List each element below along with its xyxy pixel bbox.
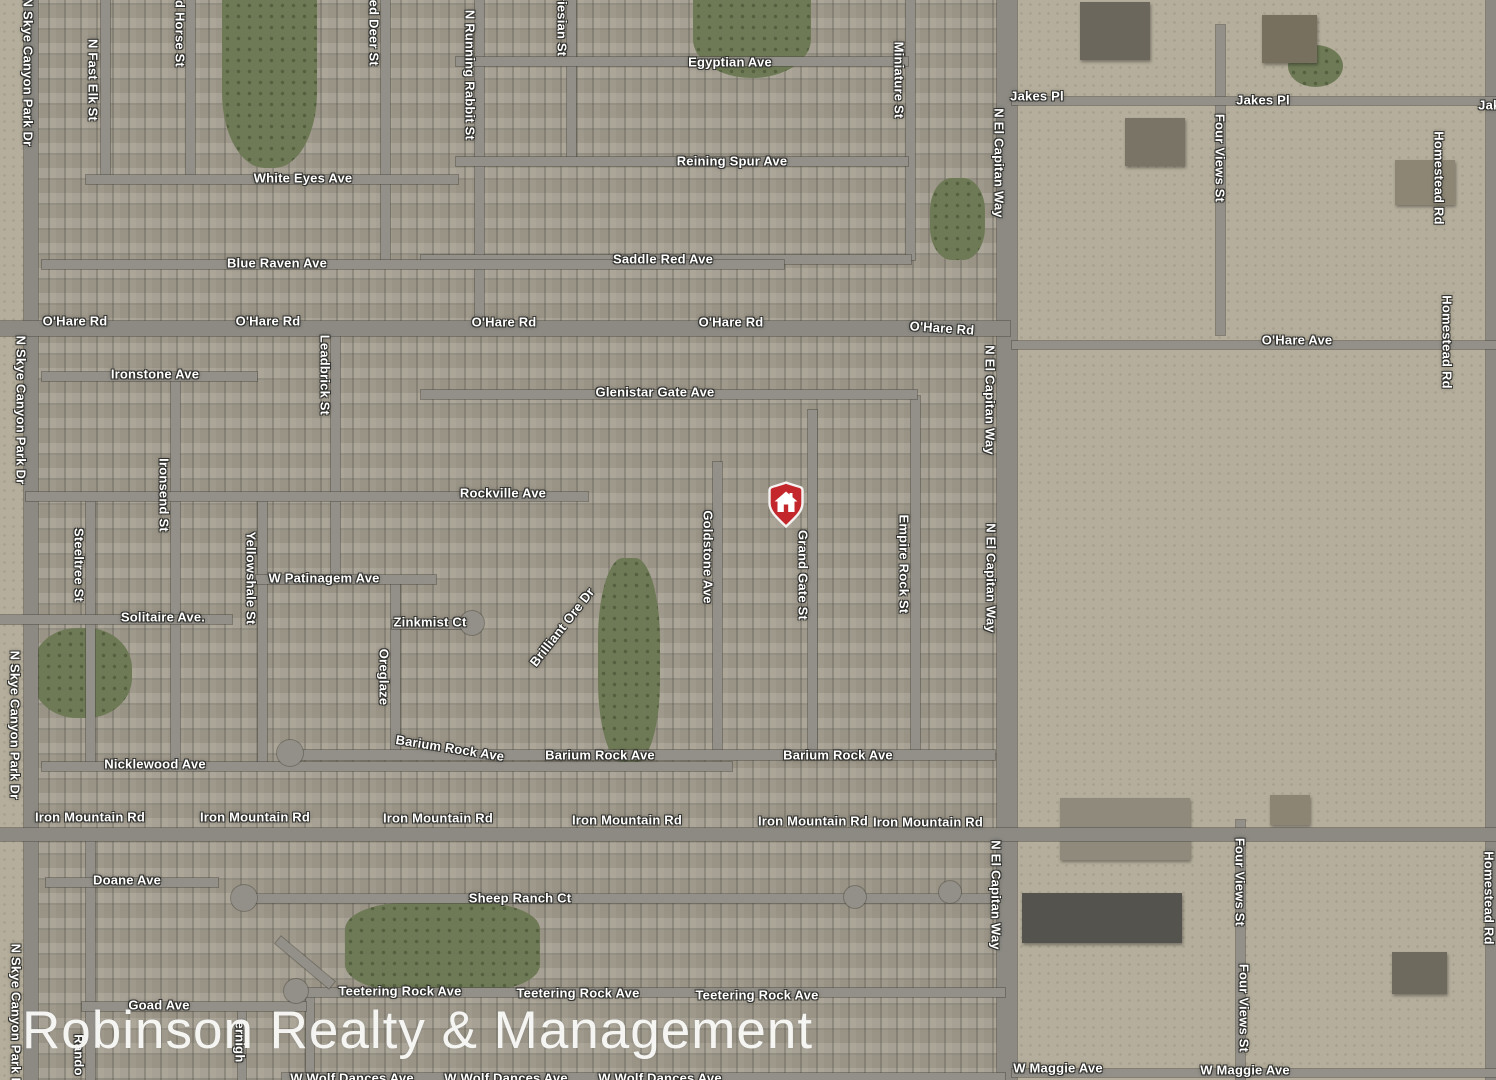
road [391, 580, 400, 753]
street-label: N El Capitan Way [983, 345, 998, 455]
street-label: Zinkmist Ct [394, 615, 467, 630]
street-label: Glenistar Gate Ave [596, 385, 715, 400]
street-label: O'Hare Ave [1262, 333, 1333, 348]
map-layers: Egyptian AveReining Spur AveWhite Eyes A… [0, 0, 1496, 1080]
building [1080, 2, 1150, 60]
street-label: Steeltree St [72, 528, 87, 602]
street-label: Iron Mountain Rd [383, 811, 493, 826]
road [381, 0, 390, 260]
park-area [345, 903, 540, 991]
park-area [32, 628, 132, 718]
street-label: White Eyes Ave [254, 171, 353, 186]
street-label: Friesian St [555, 0, 570, 56]
street-label: Reining Spur Ave [677, 154, 788, 169]
road [1012, 341, 1496, 349]
road [258, 497, 267, 767]
park-area [930, 178, 985, 260]
street-label: Grand Gate St [796, 530, 811, 620]
street-label: W Maggie Ave [1013, 1061, 1103, 1076]
street-label: Red Deer St [367, 0, 382, 66]
street-label: W Wolf Dances Ave [598, 1071, 722, 1080]
road [456, 57, 908, 66]
building [1125, 118, 1185, 166]
cul-de-sac [231, 885, 257, 911]
street-label: Jakes Pl [1236, 93, 1290, 108]
road [906, 0, 915, 260]
street-label: W Wolf Dances Ave [444, 1071, 568, 1080]
street-label: O'Hare Rd [699, 315, 764, 330]
building [1270, 795, 1310, 825]
street-label: Homestead Rd [1482, 851, 1496, 944]
street-label: Teetering Rock Ave [516, 986, 639, 1001]
street-label: Yellowshale St [244, 531, 259, 624]
watermark: Robinson Realty & Management [22, 1000, 813, 1061]
cul-de-sac [939, 881, 961, 903]
street-label: Solitaire Ave. [121, 610, 205, 625]
street-label: Jake [1478, 98, 1496, 113]
street-label: Doane Ave [93, 873, 161, 888]
street-label: Iron Mountain Rd [873, 815, 983, 830]
building [1262, 15, 1317, 63]
street-label: N Skye Canyon Park Dr [8, 651, 23, 800]
street-label: Empire Rock St [897, 515, 912, 614]
satellite-map[interactable]: Egyptian AveReining Spur AveWhite Eyes A… [0, 0, 1496, 1080]
road [713, 462, 722, 758]
desert-area [0, 0, 24, 1080]
street-label: Brilliant Ore Dr [527, 585, 598, 670]
street-label: Nicklewood Ave [104, 757, 206, 772]
park-area [598, 558, 660, 763]
property-marker[interactable] [768, 481, 804, 528]
street-label: Saddle Red Ave [613, 252, 713, 267]
park-area [222, 0, 317, 168]
street-label: Miniature St [892, 42, 907, 119]
street-label: O'Hare Rd [472, 315, 537, 330]
street-label: N Running Rabbit St [463, 10, 478, 140]
road [171, 377, 180, 767]
street-label: Egyptian Ave [688, 55, 772, 70]
road [242, 894, 990, 903]
street-label: N El Capitan Way [984, 523, 999, 633]
street-label: Homestead Rd [1440, 295, 1455, 388]
street-label: Barium Rock Ave [545, 748, 655, 763]
street-label: Barium Rock Ave [783, 748, 893, 763]
street-label: Sheep Ranch Ct [469, 891, 571, 906]
street-label: Goldstone Ave [701, 510, 716, 603]
street-label: Ironstone Ave [111, 367, 199, 382]
street-label: Leadbrick St [318, 335, 333, 415]
street-label: N El Capitan Way [992, 108, 1007, 218]
street-label: W Patinagem Ave [268, 571, 379, 586]
building [1022, 893, 1182, 943]
street-label: W Wolf Dances Ave [290, 1071, 414, 1080]
street-label: Ironsend St [157, 458, 172, 532]
street-label: Red Horse St [173, 0, 188, 67]
street-label: Homestead Rd [1432, 131, 1447, 224]
street-label: O'Hare Rd [43, 314, 108, 329]
street-label: Jakes Pl [1010, 89, 1064, 104]
street-label: Four Views St [1213, 114, 1228, 202]
street-label: N Skye Canyon Park Dr [14, 336, 29, 485]
street-label: Iron Mountain Rd [572, 813, 682, 828]
desert-area [1017, 352, 1496, 780]
street-label: Rockville Ave [460, 486, 546, 501]
street-label: Blue Raven Ave [227, 256, 327, 271]
street-label: N El Capitan Way [989, 840, 1004, 950]
map-pin-icon [768, 481, 804, 528]
street-label: Iron Mountain Rd [35, 810, 145, 825]
building [1392, 952, 1447, 994]
road [0, 828, 1496, 841]
street-label: Four Views St [1233, 838, 1248, 926]
road [911, 396, 920, 758]
street-label: Teetering Rock Ave [338, 984, 461, 999]
road [101, 0, 110, 180]
road [275, 937, 334, 989]
street-label: N Skye Canyon Park Dr [21, 0, 36, 146]
road [86, 497, 95, 767]
street-label: N Fast Elk St [86, 39, 101, 121]
street-label: Iron Mountain Rd [758, 814, 868, 829]
street-label: Iron Mountain Rd [200, 810, 310, 825]
street-label: Four Views St [1237, 964, 1252, 1052]
street-label: O'Hare Rd [236, 314, 301, 329]
street-label: W Maggie Ave [1200, 1063, 1290, 1078]
cul-de-sac [277, 740, 303, 766]
road [24, 0, 38, 1080]
street-label: Oreglaze [377, 649, 392, 706]
cul-de-sac [844, 886, 866, 908]
